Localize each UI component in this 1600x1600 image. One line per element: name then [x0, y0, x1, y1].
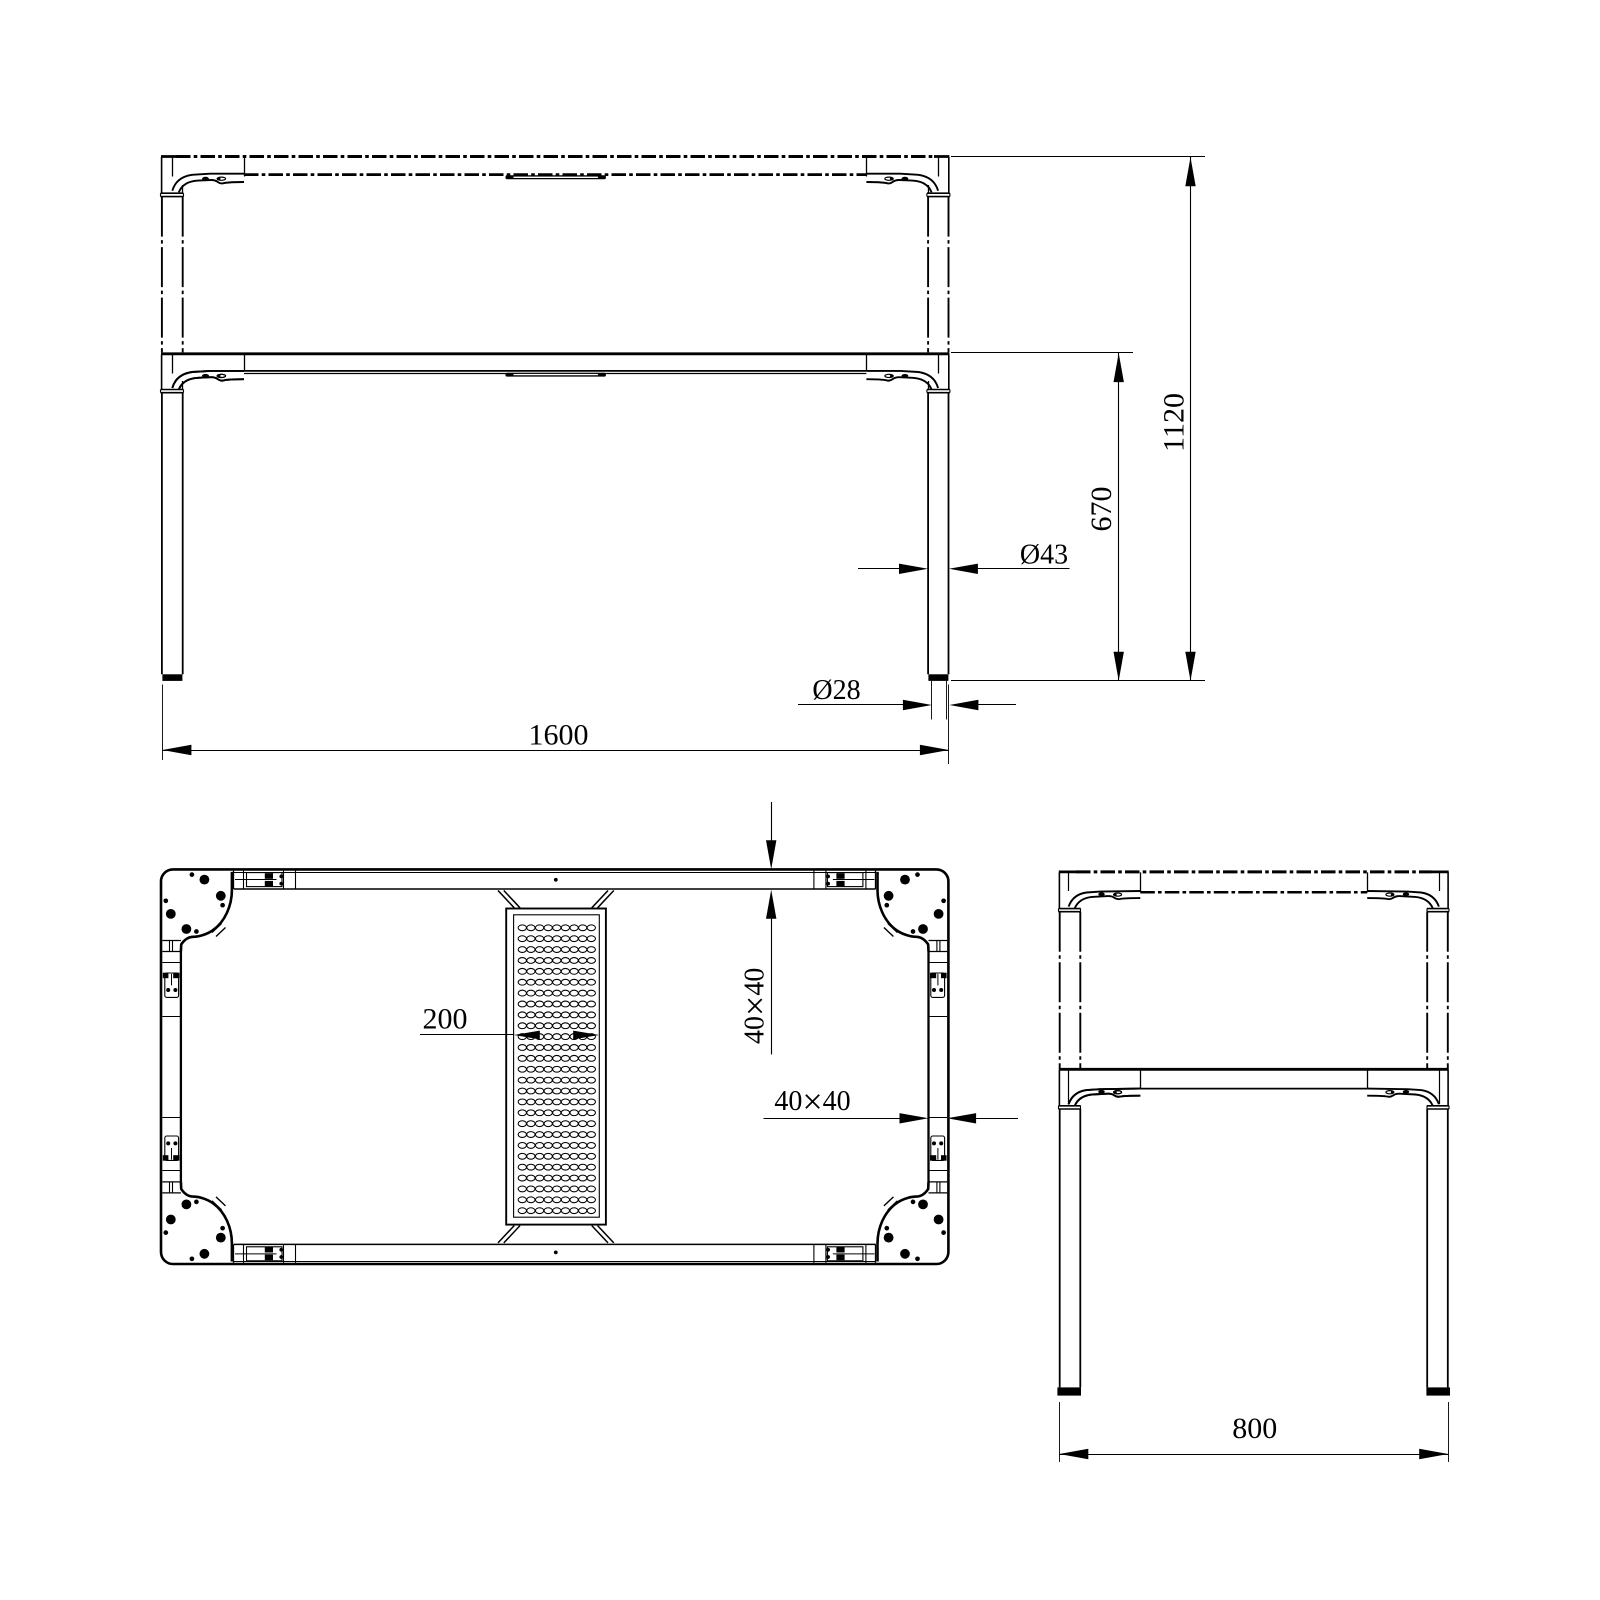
svg-text:800: 800 [1232, 1412, 1277, 1445]
svg-text:1120: 1120 [1158, 393, 1191, 452]
svg-text:1600: 1600 [529, 718, 589, 751]
svg-text:40×40: 40×40 [774, 1081, 850, 1121]
svg-text:670: 670 [1085, 487, 1118, 532]
svg-text:40×40: 40×40 [735, 968, 775, 1044]
svg-text:Ø43: Ø43 [1020, 540, 1068, 571]
svg-text:200: 200 [423, 1002, 468, 1035]
svg-text:Ø28: Ø28 [812, 675, 860, 706]
